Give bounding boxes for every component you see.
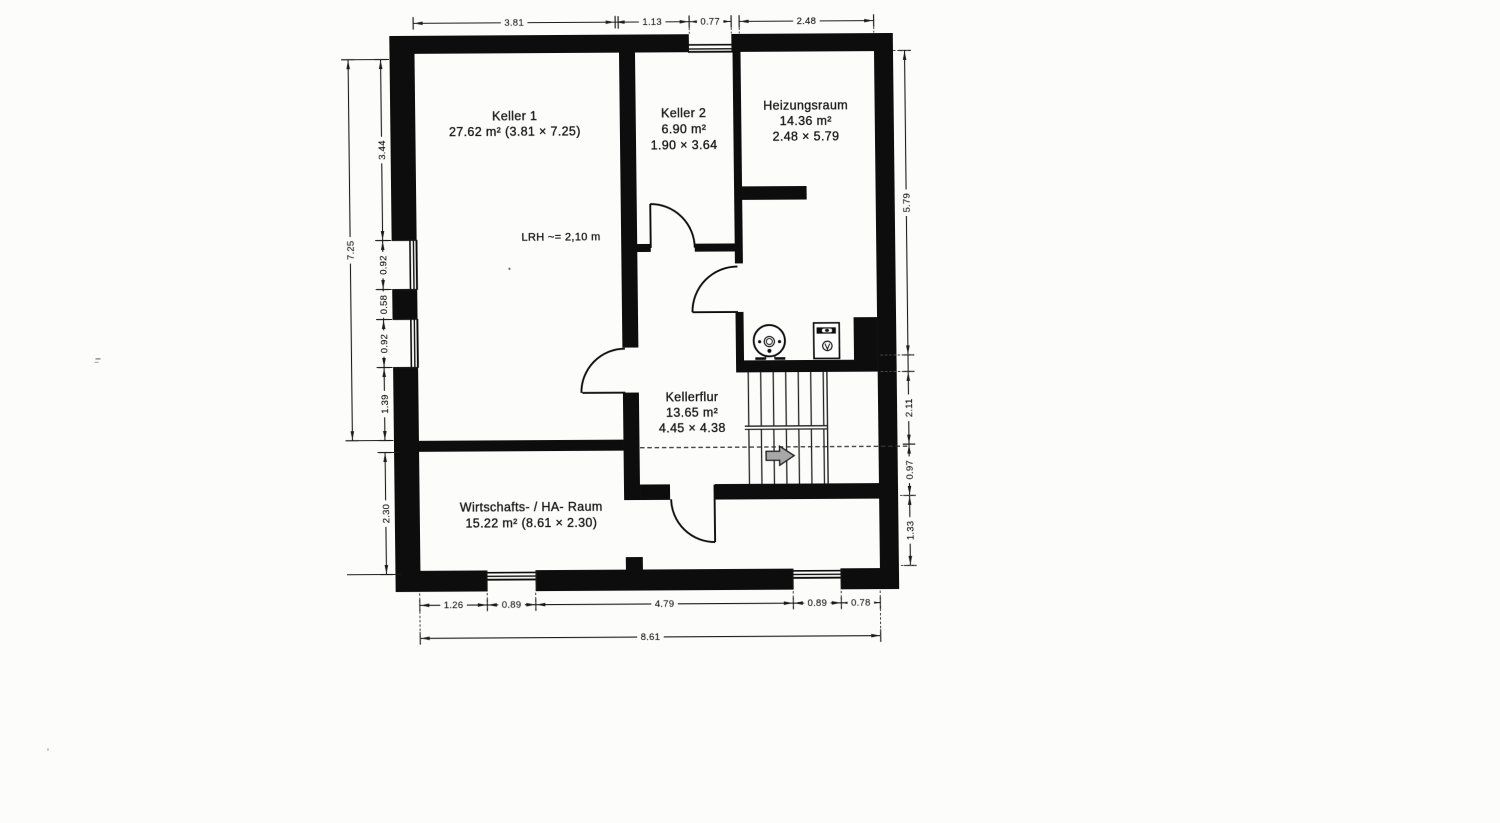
svg-text:Heizungsraum: Heizungsraum: [763, 98, 848, 113]
svg-text:0.89: 0.89: [502, 600, 522, 611]
svg-text:27.62 m² (3.81 × 7.25): 27.62 m² (3.81 × 7.25): [449, 124, 581, 139]
svg-text:Wirtschafts- / HA- Raum: Wirtschafts- / HA- Raum: [460, 500, 603, 515]
svg-text:0.92: 0.92: [378, 255, 389, 275]
svg-text:0.77: 0.77: [700, 16, 720, 27]
svg-text:2.48 × 5.79: 2.48 × 5.79: [773, 129, 840, 143]
svg-text:6.90 m²: 6.90 m²: [661, 122, 706, 136]
svg-text:1.26: 1.26: [444, 600, 464, 611]
svg-text:0.97: 0.97: [905, 460, 916, 480]
svg-text:4.79: 4.79: [655, 599, 675, 610]
svg-text:Keller 1: Keller 1: [492, 109, 537, 123]
svg-text:2.11: 2.11: [904, 398, 915, 417]
svg-text:0.58: 0.58: [379, 295, 390, 315]
svg-text:5.79: 5.79: [901, 193, 912, 213]
svg-text:0.92: 0.92: [379, 334, 390, 354]
svg-text:2.30: 2.30: [381, 504, 392, 524]
svg-text:14.36 m²: 14.36 m²: [780, 114, 832, 128]
svg-text:4.45 × 4.38: 4.45 × 4.38: [659, 421, 726, 435]
svg-text:0.89: 0.89: [808, 598, 828, 609]
svg-text:3.81: 3.81: [504, 18, 524, 29]
svg-text:1.13: 1.13: [642, 17, 662, 28]
svg-text:8.61: 8.61: [641, 632, 661, 643]
svg-text:13.65 m²: 13.65 m²: [666, 405, 718, 419]
svg-text:1.33: 1.33: [905, 521, 916, 541]
svg-text:15.22 m² (8.61 × 2.30): 15.22 m² (8.61 × 2.30): [465, 516, 597, 531]
svg-text:0.78: 0.78: [851, 597, 871, 608]
svg-text:Keller 2: Keller 2: [661, 106, 706, 120]
svg-text:1.39: 1.39: [380, 394, 391, 414]
svg-text:1.90 × 3.64: 1.90 × 3.64: [651, 138, 718, 152]
svg-text:7.25: 7.25: [345, 240, 356, 260]
svg-text:Kellerflur: Kellerflur: [665, 390, 718, 404]
svg-text:2.48: 2.48: [797, 16, 817, 27]
svg-text:LRH ~= 2,10 m: LRH ~= 2,10 m: [521, 231, 600, 243]
svg-text:3.44: 3.44: [377, 140, 388, 160]
